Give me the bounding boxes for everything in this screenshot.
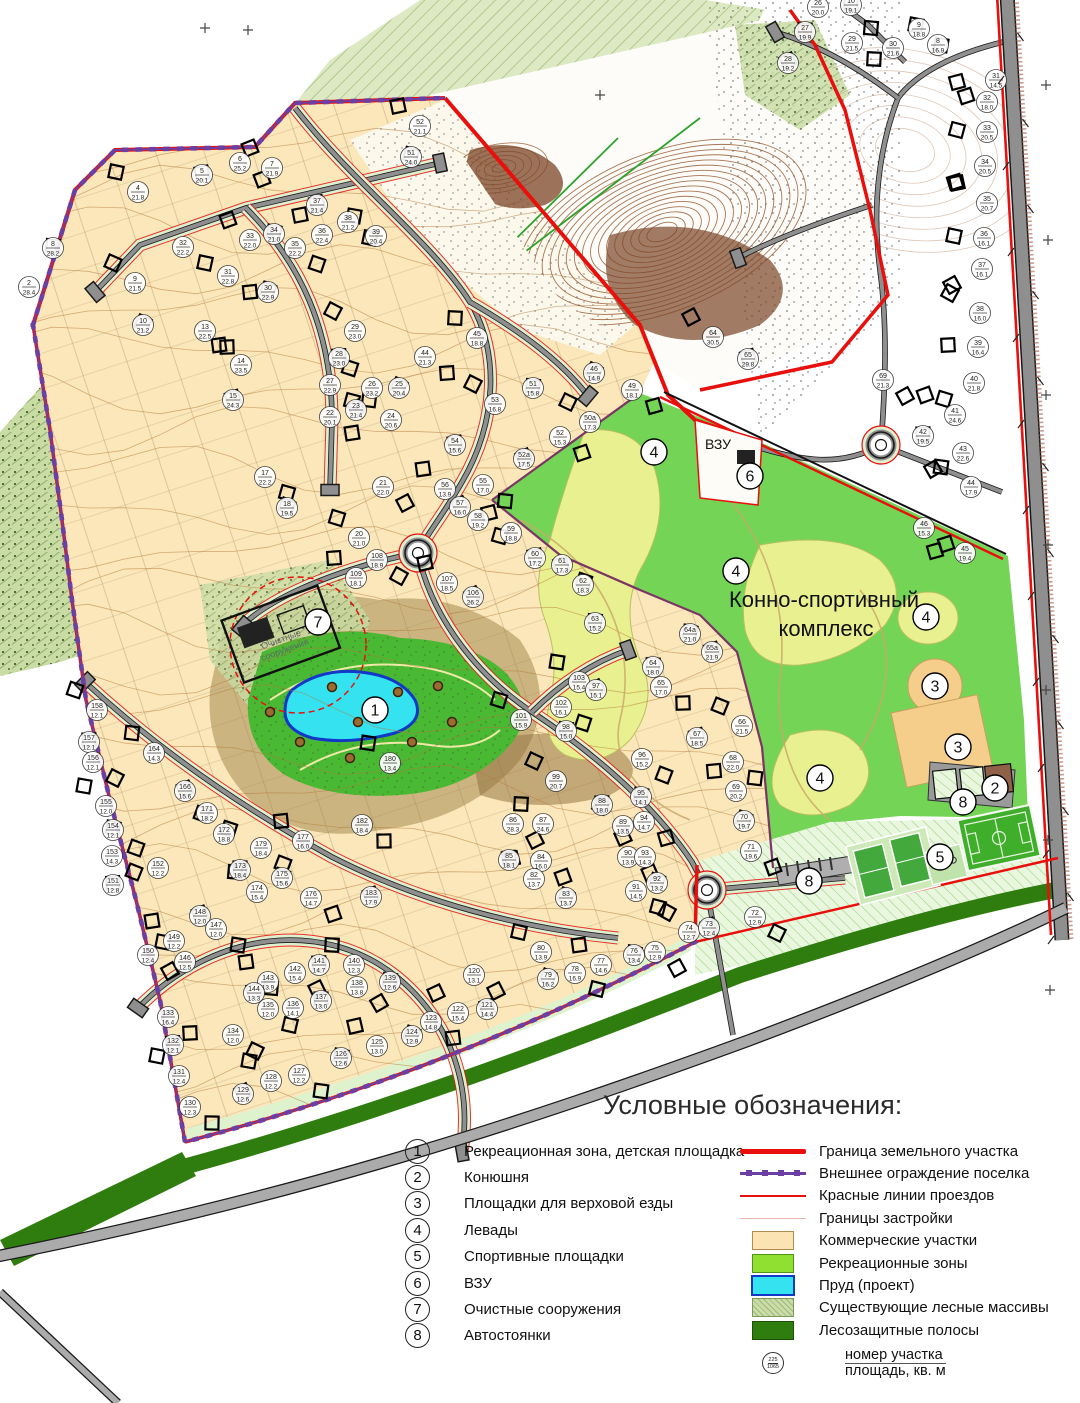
svg-text:127: 127 (293, 1068, 305, 1075)
svg-text:20.4: 20.4 (393, 391, 406, 398)
plot-label: 14215.4 (285, 963, 306, 984)
svg-text:70: 70 (740, 814, 748, 821)
svg-text:30: 30 (889, 41, 897, 48)
svg-text:9: 9 (917, 22, 921, 29)
plot-label: 625.2 (230, 153, 251, 174)
svg-text:20.1: 20.1 (196, 178, 209, 185)
svg-text:32: 32 (179, 240, 187, 247)
svg-text:16.0: 16.0 (454, 510, 467, 517)
svg-text:5: 5 (936, 850, 945, 867)
legend-item-1: 1Рекреационная зона, детская площадка (405, 1138, 735, 1164)
svg-text:74: 74 (685, 925, 693, 932)
svg-text:16.1: 16.1 (555, 710, 568, 717)
svg-text:21.4: 21.4 (311, 208, 324, 215)
svg-text:12.7: 12.7 (683, 935, 696, 942)
svg-text:36: 36 (980, 231, 988, 238)
svg-text:1: 1 (371, 703, 380, 720)
svg-text:16.4: 16.4 (972, 350, 985, 357)
legend-number-badge: 8 (405, 1323, 430, 1348)
svg-text:15.4: 15.4 (452, 1016, 465, 1023)
svg-text:21: 21 (379, 480, 387, 487)
svg-text:84: 84 (537, 854, 545, 861)
plot-label: 15812.1 (87, 700, 108, 721)
svg-text:147: 147 (210, 922, 222, 929)
svg-text:27: 27 (801, 25, 809, 32)
svg-text:39: 39 (372, 229, 380, 236)
svg-text:99: 99 (552, 774, 560, 781)
svg-text:12.3: 12.3 (348, 968, 361, 975)
tree-icon (296, 738, 305, 747)
tree-icon (346, 754, 355, 763)
svg-text:131: 131 (173, 1069, 185, 1076)
plot-label: 52а17.5 (514, 449, 535, 470)
plot-label: 4918.1 (622, 380, 643, 401)
plot-label: 6920.2 (726, 781, 747, 802)
legend-number-badge: 6 (405, 1271, 430, 1296)
svg-text:34: 34 (270, 227, 278, 234)
svg-text:17.3: 17.3 (584, 425, 597, 432)
svg-text:140: 140 (348, 958, 360, 965)
svg-text:38: 38 (976, 306, 984, 313)
plot-label: 3022.9 (258, 282, 279, 303)
plot-label: 2623.2 (362, 378, 383, 399)
svg-text:12.3: 12.3 (184, 1110, 197, 1117)
vzu-building (737, 450, 755, 464)
svg-text:21.1: 21.1 (414, 129, 427, 136)
svg-text:12.4: 12.4 (173, 1079, 186, 1086)
legend-item-5: 5Спортивные площадки (405, 1244, 735, 1270)
plot-label: 10718.5 (437, 573, 458, 594)
plot-label: 921.5 (125, 273, 146, 294)
tree-icon (266, 708, 275, 717)
svg-text:52: 52 (416, 119, 424, 126)
svg-text:13.5: 13.5 (617, 829, 630, 836)
legend-item-2: 2Конюшня (405, 1164, 735, 1190)
svg-text:142: 142 (289, 966, 301, 973)
svg-text:2: 2 (991, 781, 1000, 798)
svg-text:34: 34 (981, 159, 989, 166)
plot-label: 12612.6 (331, 1048, 352, 1069)
svg-text:8: 8 (805, 874, 814, 891)
svg-text:21.4: 21.4 (350, 413, 363, 420)
svg-text:141: 141 (313, 958, 325, 965)
plot-label: 4021.8 (964, 373, 985, 394)
svg-text:21.2: 21.2 (342, 225, 355, 232)
svg-text:15: 15 (229, 393, 237, 400)
svg-text:68: 68 (729, 755, 737, 762)
svg-text:21.3: 21.3 (877, 383, 890, 390)
svg-text:19.7: 19.7 (738, 824, 751, 831)
survey-cross-icon (1041, 390, 1051, 400)
svg-text:36: 36 (318, 228, 326, 235)
svg-text:158: 158 (91, 703, 103, 710)
svg-text:19.4: 19.4 (959, 556, 972, 563)
svg-text:13.0: 13.0 (315, 1004, 328, 1011)
plot-label: 17918.4 (251, 838, 272, 859)
plot-label: 3622.4 (312, 225, 333, 246)
legend-item-3: 3Площадки для верховой езды (405, 1191, 735, 1217)
svg-text:133: 133 (162, 1010, 174, 1017)
svg-text:15.2: 15.2 (636, 762, 649, 769)
svg-text:12.9: 12.9 (649, 955, 662, 962)
plot-label: 16615.6 (175, 781, 196, 802)
svg-text:14: 14 (237, 358, 245, 365)
svg-text:63: 63 (591, 616, 599, 623)
svg-text:139: 139 (384, 975, 396, 982)
plot-label: 1423.5 (231, 355, 252, 376)
svg-text:21.5: 21.5 (736, 729, 749, 736)
legend-item-6: 6ВЗУ (405, 1270, 735, 1296)
svg-text:12.9: 12.9 (406, 1039, 419, 1046)
svg-text:122: 122 (452, 1006, 464, 1013)
svg-text:4: 4 (136, 185, 140, 192)
plot-label: 6921.3 (873, 370, 894, 391)
svg-text:129: 129 (237, 1087, 249, 1094)
svg-text:12.2: 12.2 (265, 1084, 278, 1091)
tree-icon (354, 718, 363, 727)
svg-text:18.0: 18.0 (596, 808, 609, 815)
svg-text:14.5: 14.5 (990, 83, 1003, 90)
svg-text:4: 4 (650, 445, 659, 462)
plot-label: 12412.9 (402, 1026, 423, 1047)
svg-text:9: 9 (133, 276, 137, 283)
svg-text:21.0: 21.0 (353, 541, 366, 548)
svg-text:155: 155 (100, 799, 112, 806)
svg-text:16.4: 16.4 (162, 1020, 175, 1027)
plot-label: 7412.7 (679, 922, 700, 943)
map-marker-3: 3 (922, 673, 948, 699)
southwest-road (0, 1292, 118, 1403)
plot-label: 2520.4 (389, 378, 410, 399)
svg-text:18.0: 18.0 (981, 105, 994, 112)
legend-number-badge: 4 (405, 1218, 430, 1243)
svg-text:12.1: 12.1 (87, 765, 100, 772)
legend-line-thin-pink: Границы застройки (737, 1207, 1067, 1229)
plot-label: 17218.8 (214, 824, 235, 845)
svg-text:45: 45 (473, 331, 481, 338)
svg-text:15.8: 15.8 (527, 391, 540, 398)
legend-line-purple-fence-symbol (737, 1172, 809, 1175)
svg-text:18.1: 18.1 (350, 581, 363, 588)
tree-icon (434, 682, 443, 691)
svg-text:14.7: 14.7 (305, 901, 318, 908)
planned-house (76, 778, 91, 793)
svg-text:15.0: 15.0 (560, 734, 573, 741)
svg-text:149: 149 (168, 934, 180, 941)
plot-label: 9213.2 (647, 873, 668, 894)
plot-label: 2420.6 (381, 410, 402, 431)
svg-text:128: 128 (265, 1074, 277, 1081)
plot-label: 15112.8 (103, 875, 124, 896)
plot-label: 64а21.0 (680, 624, 701, 645)
svg-text:6: 6 (746, 469, 755, 486)
legend-number-badge: 1 (405, 1139, 430, 1164)
plot-label: 7816.9 (565, 963, 586, 984)
plot-label: 4518.8 (467, 328, 488, 349)
svg-text:88: 88 (598, 798, 606, 805)
svg-text:33: 33 (983, 125, 991, 132)
legend-line-thin-red-symbol (737, 1195, 809, 1197)
svg-text:15.3: 15.3 (918, 531, 931, 538)
plot-label: 2722.9 (320, 375, 341, 396)
svg-text:45: 45 (961, 546, 969, 553)
legend-swatch-pond: Пруд (проект) (737, 1274, 1067, 1296)
svg-text:18.8: 18.8 (505, 536, 518, 543)
svg-text:3: 3 (931, 679, 940, 696)
plot-label: 4417.9 (961, 477, 982, 498)
svg-text:18.9: 18.9 (371, 563, 384, 570)
svg-text:32: 32 (983, 95, 991, 102)
svg-text:49: 49 (628, 383, 636, 390)
svg-text:19.1: 19.1 (845, 8, 858, 15)
svg-text:37: 37 (313, 198, 321, 205)
plot-label: 8724.6 (533, 814, 554, 835)
svg-text:6: 6 (238, 156, 242, 163)
svg-text:30: 30 (264, 285, 272, 292)
legend-item-8: 8Автостоянки (405, 1323, 735, 1349)
svg-text:20.7: 20.7 (981, 206, 994, 213)
plot-label: 3821.2 (338, 212, 359, 233)
svg-text:106: 106 (467, 590, 479, 597)
svg-text:21.9: 21.9 (266, 171, 279, 178)
vzu-label: ВЗУ (705, 436, 731, 452)
svg-text:173: 173 (234, 863, 246, 870)
plot-label: 7019.7 (734, 811, 755, 832)
svg-text:59: 59 (507, 526, 515, 533)
svg-text:20: 20 (355, 531, 363, 538)
plot-label: 4519.4 (955, 543, 976, 564)
svg-text:92: 92 (653, 876, 661, 883)
map-marker-7: 7 (305, 609, 331, 635)
svg-text:12.4: 12.4 (142, 958, 155, 965)
plot-label: 918.8 (909, 19, 930, 40)
svg-text:21.8: 21.8 (968, 386, 981, 393)
legend-swatch-pond-symbol (737, 1275, 809, 1296)
svg-text:80: 80 (537, 945, 545, 952)
svg-text:22.5: 22.5 (199, 334, 212, 341)
plot-label: 3616.1 (974, 228, 995, 249)
svg-text:57: 57 (456, 500, 464, 507)
plot-label: 5316.8 (485, 394, 506, 415)
plot-label: 9815.0 (556, 721, 577, 742)
svg-text:29: 29 (848, 36, 856, 43)
svg-text:21.9: 21.9 (706, 655, 719, 662)
plot-label: 8628.3 (503, 814, 524, 835)
svg-text:64: 64 (709, 330, 717, 337)
svg-text:20.2: 20.2 (730, 794, 743, 801)
svg-text:18.1: 18.1 (626, 393, 639, 400)
svg-text:65а: 65а (706, 645, 718, 652)
legend-swatch-belt-label: Лесозащитные полосы (819, 1322, 979, 1339)
svg-text:28: 28 (784, 56, 792, 63)
plot-label: 2220.1 (320, 407, 341, 428)
svg-text:121: 121 (481, 1002, 493, 1009)
svg-text:21.5: 21.5 (129, 286, 142, 293)
plot-label: 7212.9 (745, 907, 766, 928)
svg-text:123: 123 (425, 1015, 437, 1022)
legend-swatch-pond-label: Пруд (проект) (819, 1277, 915, 1294)
plot-label: 14012.3 (344, 955, 365, 976)
svg-text:150: 150 (142, 948, 154, 955)
plot-label: 15512.0 (96, 796, 117, 817)
svg-text:25: 25 (395, 381, 403, 388)
svg-text:152: 152 (152, 861, 164, 868)
svg-text:13.0: 13.0 (371, 1049, 384, 1056)
legend-line-purple-fence-label: Внешнее ограждение поселка (819, 1165, 1029, 1182)
legend-title: Условные обозначения: (603, 1090, 902, 1121)
svg-text:12.1: 12.1 (167, 1048, 180, 1055)
svg-text:20.5: 20.5 (979, 169, 992, 176)
svg-text:15.4: 15.4 (573, 685, 586, 692)
plot-label: 17415.4 (247, 882, 268, 903)
plot-label: 520.1 (192, 165, 213, 186)
legend-line-thin-pink-label: Границы застройки (819, 1210, 953, 1227)
plot-label: 6718.5 (687, 728, 708, 749)
svg-text:3: 3 (954, 740, 963, 757)
svg-text:7: 7 (314, 615, 323, 632)
svg-text:13.8: 13.8 (351, 990, 364, 997)
svg-text:107: 107 (441, 576, 453, 583)
svg-text:13.3: 13.3 (248, 996, 261, 1003)
legend-number-badge: 3 (405, 1191, 430, 1216)
svg-text:22.8: 22.8 (222, 279, 235, 286)
map-marker-4: 4 (641, 439, 667, 465)
plot-label: 9514.1 (631, 787, 652, 808)
survey-cross-icon (243, 25, 253, 35)
svg-text:18.5: 18.5 (691, 741, 704, 748)
plot-label: 4124.6 (945, 405, 966, 426)
legend-swatch-belt-symbol (737, 1321, 809, 1340)
legend-swatch-green: Рекреационные зоны (737, 1252, 1067, 1274)
plot-label: 828.2 (43, 238, 64, 259)
legend-swatch-tan-label: Коммерческие участки (819, 1232, 977, 1249)
parcel-symbol-circle: 2251065 (762, 1352, 784, 1374)
svg-text:13.2: 13.2 (651, 886, 664, 893)
legend-item-7: 7Очистные сооружения (405, 1296, 735, 1322)
plot-label: 2819.2 (778, 53, 799, 74)
svg-text:21.2: 21.2 (137, 328, 150, 335)
svg-text:98: 98 (562, 724, 570, 731)
svg-text:12.2: 12.2 (168, 944, 181, 951)
plot-label: 5613.9 (435, 479, 456, 500)
legend-item-4: 4Левады (405, 1217, 735, 1243)
plot-label: 15212.2 (148, 858, 169, 879)
map-marker-6: 6 (737, 463, 763, 489)
svg-text:12.6: 12.6 (335, 1061, 348, 1068)
svg-text:22.0: 22.0 (244, 243, 257, 250)
svg-text:22.2: 22.2 (259, 480, 272, 487)
plot-label: 8518.1 (499, 850, 520, 871)
svg-text:28.4: 28.4 (23, 290, 36, 297)
svg-text:44: 44 (421, 350, 429, 357)
svg-text:13.9: 13.9 (535, 955, 548, 962)
svg-text:30.5: 30.5 (707, 340, 720, 347)
svg-text:72: 72 (751, 910, 759, 917)
legend-swatch-sage-label: Существующие лесные массивы (819, 1299, 1049, 1316)
svg-text:35: 35 (983, 196, 991, 203)
svg-text:15.4: 15.4 (289, 976, 302, 983)
svg-text:174: 174 (251, 885, 263, 892)
plot-label: 7312.4 (699, 918, 720, 939)
plot-label: 6430.5 (703, 327, 724, 348)
svg-text:24.6: 24.6 (949, 418, 962, 425)
plot-label: 18013.4 (380, 753, 401, 774)
svg-text:22.2: 22.2 (177, 250, 190, 257)
svg-text:148: 148 (194, 909, 206, 916)
svg-text:2: 2 (27, 280, 31, 287)
svg-text:13.7: 13.7 (528, 882, 541, 889)
plot-label: 2021.0 (349, 528, 370, 549)
plot-label: 7119.6 (741, 841, 762, 862)
svg-text:95: 95 (637, 790, 645, 797)
svg-text:14.6: 14.6 (595, 968, 608, 975)
svg-text:35: 35 (291, 241, 299, 248)
svg-text:19.9: 19.9 (799, 35, 812, 42)
plot-label: 15412.1 (103, 820, 124, 841)
plot-label: 3320.5 (977, 122, 998, 143)
svg-text:10: 10 (139, 318, 147, 325)
svg-text:14.3: 14.3 (106, 859, 119, 866)
svg-text:14.4: 14.4 (481, 1012, 494, 1019)
svg-text:96: 96 (638, 752, 646, 759)
svg-text:183: 183 (365, 890, 377, 897)
svg-text:13.9: 13.9 (439, 492, 452, 499)
svg-text:12.1: 12.1 (83, 745, 96, 752)
plot-label: 1524.3 (223, 390, 244, 411)
plot-label: 5115.8 (523, 378, 544, 399)
plot-label: 13614.1 (283, 998, 304, 1019)
legend-parcel-symbol: 2251065номер участкаплощадь, кв. м (737, 1348, 1067, 1379)
svg-text:60: 60 (531, 551, 539, 558)
plot-label: 3920.4 (366, 226, 387, 247)
plot-label: 3122.8 (218, 266, 239, 287)
svg-text:15.6: 15.6 (179, 794, 192, 801)
plot-label: 3421.0 (264, 224, 285, 245)
svg-text:44: 44 (967, 480, 975, 487)
svg-text:24.3: 24.3 (227, 403, 240, 410)
plot-label: 5819.2 (468, 510, 489, 531)
svg-text:8: 8 (51, 241, 55, 248)
planned-house (67, 682, 84, 699)
map-marker-4: 4 (723, 558, 749, 584)
plot-label: 17515.6 (272, 868, 293, 889)
roundabout-island (876, 440, 887, 451)
svg-text:12.8: 12.8 (107, 888, 120, 895)
pond (285, 671, 418, 740)
svg-text:21.0: 21.0 (268, 237, 281, 244)
svg-text:12.0: 12.0 (194, 919, 207, 926)
svg-text:50а: 50а (584, 415, 596, 422)
legend-line-thick-red-symbol (737, 1149, 809, 1154)
plot-label: 10115.9 (511, 710, 532, 731)
svg-text:91: 91 (632, 884, 640, 891)
svg-text:146: 146 (179, 955, 191, 962)
svg-text:18.4: 18.4 (356, 828, 369, 835)
svg-text:16.0: 16.0 (297, 844, 310, 851)
svg-text:39: 39 (974, 340, 982, 347)
plot-label: 6315.2 (585, 613, 606, 634)
svg-text:26: 26 (814, 0, 822, 7)
legend-swatch-tan: Коммерческие участки (737, 1230, 1067, 1252)
legend-swatch-green-symbol (737, 1254, 809, 1273)
plot-label: 9920.7 (546, 771, 567, 792)
culdesac-hammerhead (321, 485, 339, 496)
svg-text:22.6: 22.6 (957, 456, 970, 463)
svg-text:89: 89 (619, 819, 627, 826)
svg-text:17.9: 17.9 (365, 900, 378, 907)
map-marker-8: 8 (950, 789, 976, 815)
svg-text:22.0: 22.0 (727, 765, 740, 772)
